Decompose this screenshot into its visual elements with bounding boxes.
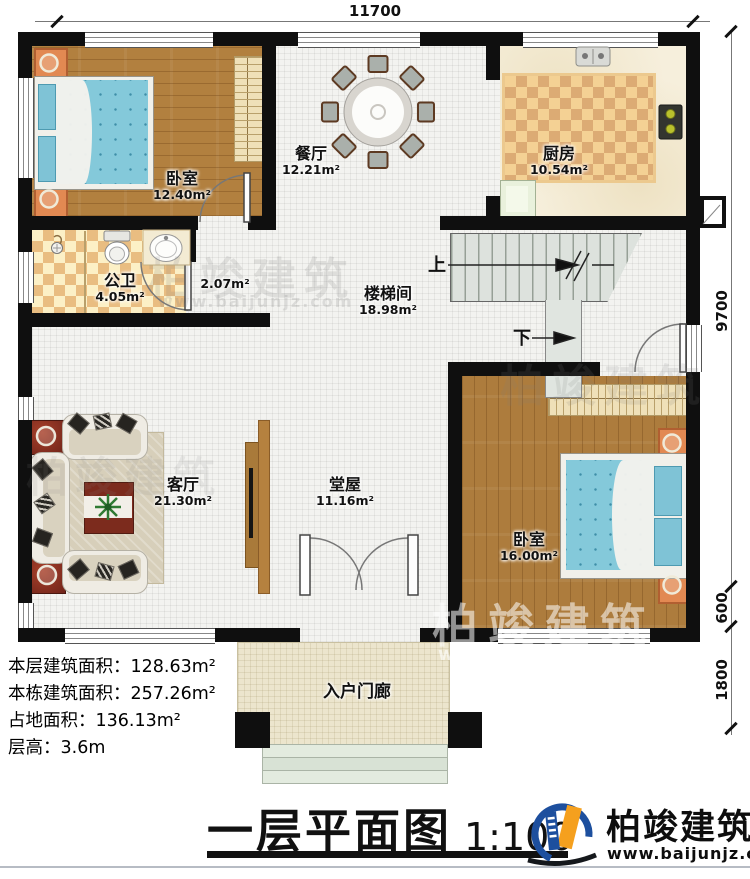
bed-pillow (654, 518, 682, 566)
area-summary: 本层建筑面积：128.63m² 本栋建筑面积：257.26m² 占地面积：136… (8, 654, 216, 762)
room-label-bedroom2: 卧室 16.00m² (469, 531, 589, 564)
bed-pillow (38, 84, 56, 130)
wall-segment (650, 628, 700, 642)
wall-segment (18, 178, 32, 252)
dim-right-mid: 600 (713, 578, 731, 638)
wall-segment (420, 628, 450, 642)
summary-line: 本栋建筑面积：257.26m² (8, 681, 216, 708)
stair-down-label: 下 (505, 324, 539, 350)
room-label-kitchen: 厨房 10.54m² (499, 145, 619, 178)
porch-column (235, 712, 270, 748)
window (18, 252, 34, 303)
wall-segment (270, 628, 300, 642)
wall-segment (486, 32, 500, 80)
room-label-living: 客厅 21.30m² (123, 476, 243, 509)
window (85, 32, 213, 48)
room-label-dining: 餐厅 12.21m² (251, 145, 371, 178)
stair-down-run (545, 300, 582, 398)
dim-top-width: 11700 (330, 2, 420, 20)
brand-logo-icon (522, 796, 602, 874)
stair-up-label: 上 (420, 251, 454, 277)
wall-segment (448, 628, 498, 642)
watermark-site: www.baijunjz.com (438, 644, 670, 665)
wall-segment (18, 628, 65, 642)
window (686, 325, 702, 372)
summary-line: 占地面积：136.13m² (8, 708, 216, 735)
wall-segment (18, 216, 198, 230)
porch-column (448, 712, 482, 748)
window (498, 628, 650, 644)
window (18, 397, 34, 420)
wall-segment (18, 313, 270, 327)
window (18, 603, 34, 628)
bed-pillow (38, 136, 56, 182)
wall-segment (262, 32, 276, 230)
wall-segment (213, 32, 298, 46)
wall-segment (440, 216, 700, 230)
wall-segment (420, 32, 523, 46)
title-underline (207, 851, 568, 858)
brand-name: 柏竣建筑 (606, 799, 750, 850)
room-label-bathroom: 公卫 4.05m² (60, 272, 180, 305)
window (523, 32, 658, 48)
summary-line: 层高：3.6m (8, 735, 216, 762)
bed-pillow (654, 466, 682, 516)
room-label-porch: 入户门廊 (277, 683, 437, 703)
wall-segment (18, 32, 85, 46)
room-label-main-hall: 堂屋 11.16m² (285, 476, 405, 509)
window (298, 32, 420, 48)
bed-sheet (612, 460, 654, 570)
wall-segment (18, 46, 32, 78)
dim-right-bottom: 1800 (713, 650, 731, 710)
wall-segment (686, 372, 700, 642)
wall-segment (18, 420, 32, 603)
dim-line (35, 21, 710, 22)
porch-steps (262, 744, 448, 782)
brand-website: www.baijunjz.com (607, 844, 750, 863)
window (65, 628, 215, 644)
wall-segment (186, 230, 196, 262)
dim-line (731, 30, 732, 735)
wall-segment (686, 32, 700, 325)
footer-rule (0, 866, 750, 868)
wall-segment (215, 628, 270, 642)
room-label-bedroom1: 卧室 12.40m² (122, 170, 242, 203)
dim-right-main: 9700 (713, 281, 731, 341)
window (18, 78, 34, 178)
flue-box (700, 196, 726, 228)
bed-sheet (56, 80, 92, 184)
room-label-hallway: 2.07m² (165, 277, 285, 291)
floor-plan-canvas: 卧室 12.40m² 餐厅 12.21m² 厨房 10.54m² 公卫 4.05… (0, 0, 750, 879)
room-label-stairwell: 楼梯间 18.98m² (328, 285, 448, 318)
refrigerator (500, 180, 536, 220)
tv-partition-wall (258, 420, 270, 594)
wall-segment (448, 362, 600, 376)
summary-line: 本层建筑面积：128.63m² (8, 654, 216, 681)
wall-segment (448, 362, 462, 642)
side-table (30, 420, 64, 455)
